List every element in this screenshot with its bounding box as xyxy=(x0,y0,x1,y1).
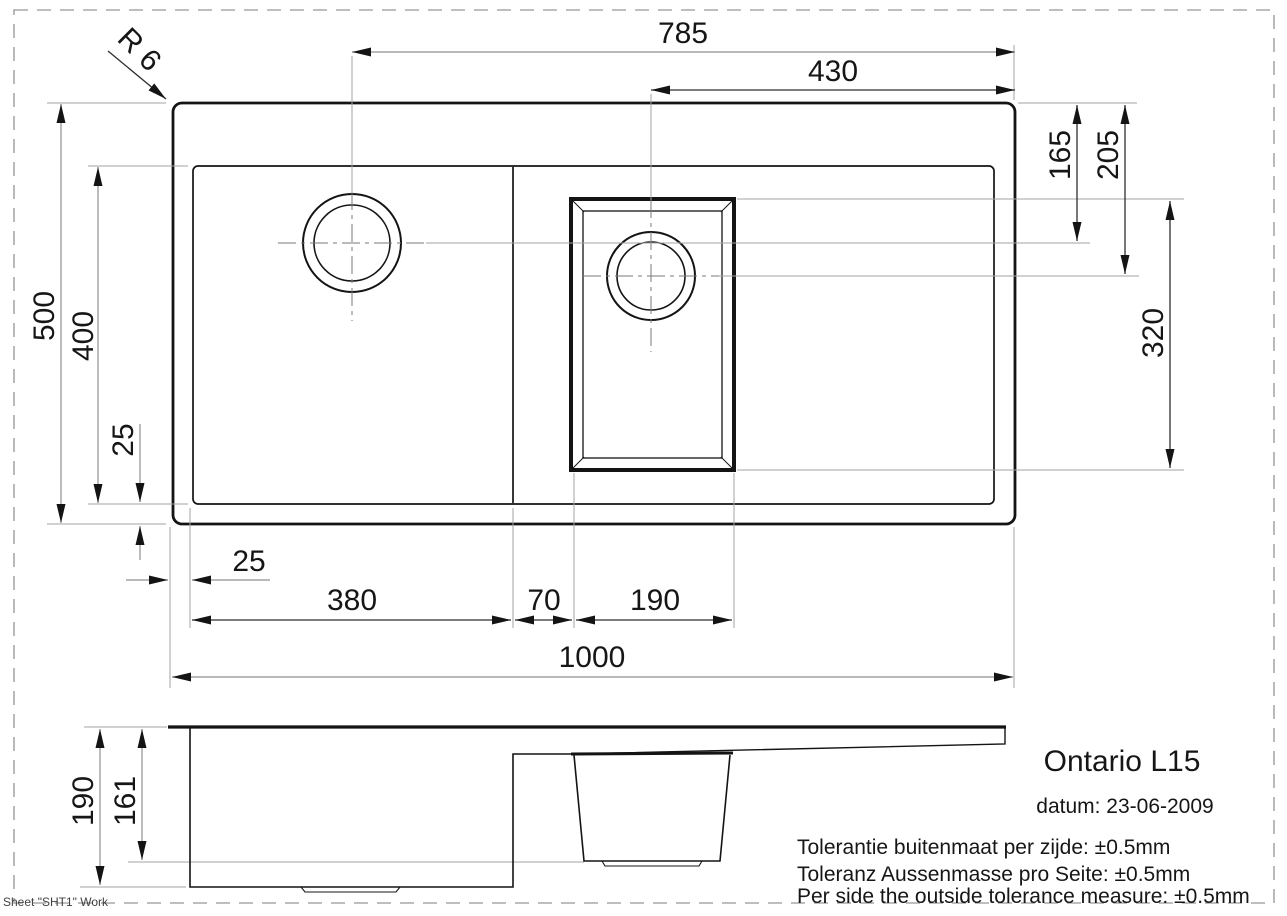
sheet-label: Sheet "SHT1" Work xyxy=(3,895,109,909)
dim-190-depth: 190 xyxy=(67,729,100,885)
dim-25-side: 25 xyxy=(107,423,140,560)
dim-r6-label: R 6 xyxy=(111,22,167,78)
dim-400-label: 400 xyxy=(67,311,100,361)
dim-785-label: 785 xyxy=(658,17,708,50)
dim-190-top: 190 xyxy=(576,584,732,620)
dim-165-label: 165 xyxy=(1044,130,1077,180)
title-block: Ontario L15 datum: 23-06-2009 Tolerantie… xyxy=(797,745,1250,908)
dim-190-depth-label: 190 xyxy=(67,776,100,826)
dim-161: 161 xyxy=(109,729,142,860)
drainboard-profile xyxy=(573,728,1005,754)
dim-205-label: 205 xyxy=(1092,130,1125,180)
dim-1000-label: 1000 xyxy=(559,641,626,674)
dim-380: 380 xyxy=(192,584,511,620)
dim-190-top-label: 190 xyxy=(630,584,680,617)
dim-400: 400 xyxy=(67,167,100,503)
small-bowl-outer xyxy=(571,199,734,470)
dim-320: 320 xyxy=(1137,201,1170,468)
sink-inner-edge xyxy=(193,166,994,504)
tolerance-line-de: Toleranz Aussenmasse pro Seite: ±0.5mm xyxy=(797,863,1190,886)
tolerance-line-nl: Tolerantie buitenmaat per zijde: ±0.5mm xyxy=(797,836,1170,859)
small-bowl-corner-bevels xyxy=(572,200,733,469)
top-view xyxy=(173,103,1015,524)
dim-25-bottom: 25 xyxy=(126,545,270,580)
dim-165: 165 xyxy=(1044,105,1077,241)
dim-70: 70 xyxy=(515,584,572,620)
dim-320-label: 320 xyxy=(1137,308,1170,358)
dim-25-side-label: 25 xyxy=(107,423,140,456)
main-bowl-profile xyxy=(190,728,573,887)
dim-430: 430 xyxy=(651,55,1015,90)
tolerance-line-en: Per side the outside tolerance measure: … xyxy=(797,885,1250,908)
dim-380-label: 380 xyxy=(327,584,377,617)
dim-785: 785 xyxy=(352,17,1015,52)
dim-500: 500 xyxy=(28,104,61,523)
dim-70-label: 70 xyxy=(527,584,560,617)
dim-161-label: 161 xyxy=(109,776,142,826)
small-bowl-inner xyxy=(583,211,722,458)
dim-205: 205 xyxy=(1092,105,1125,274)
product-name: Ontario L15 xyxy=(1044,745,1201,778)
sink-technical-drawing: 785 430 500 400 25 165 205 320 xyxy=(0,0,1287,916)
dim-430-label: 430 xyxy=(808,55,858,88)
date-line: datum: 23-06-2009 xyxy=(1036,795,1213,818)
small-bowl-profile xyxy=(574,755,730,861)
extension-lines xyxy=(47,45,1184,887)
dim-corner-radius: R 6 xyxy=(108,22,167,99)
dim-1000: 1000 xyxy=(172,641,1013,677)
dim-25-bottom-label: 25 xyxy=(232,545,265,578)
dim-500-label: 500 xyxy=(28,291,61,341)
drawing-sheet: 785 430 500 400 25 165 205 320 xyxy=(0,0,1287,916)
